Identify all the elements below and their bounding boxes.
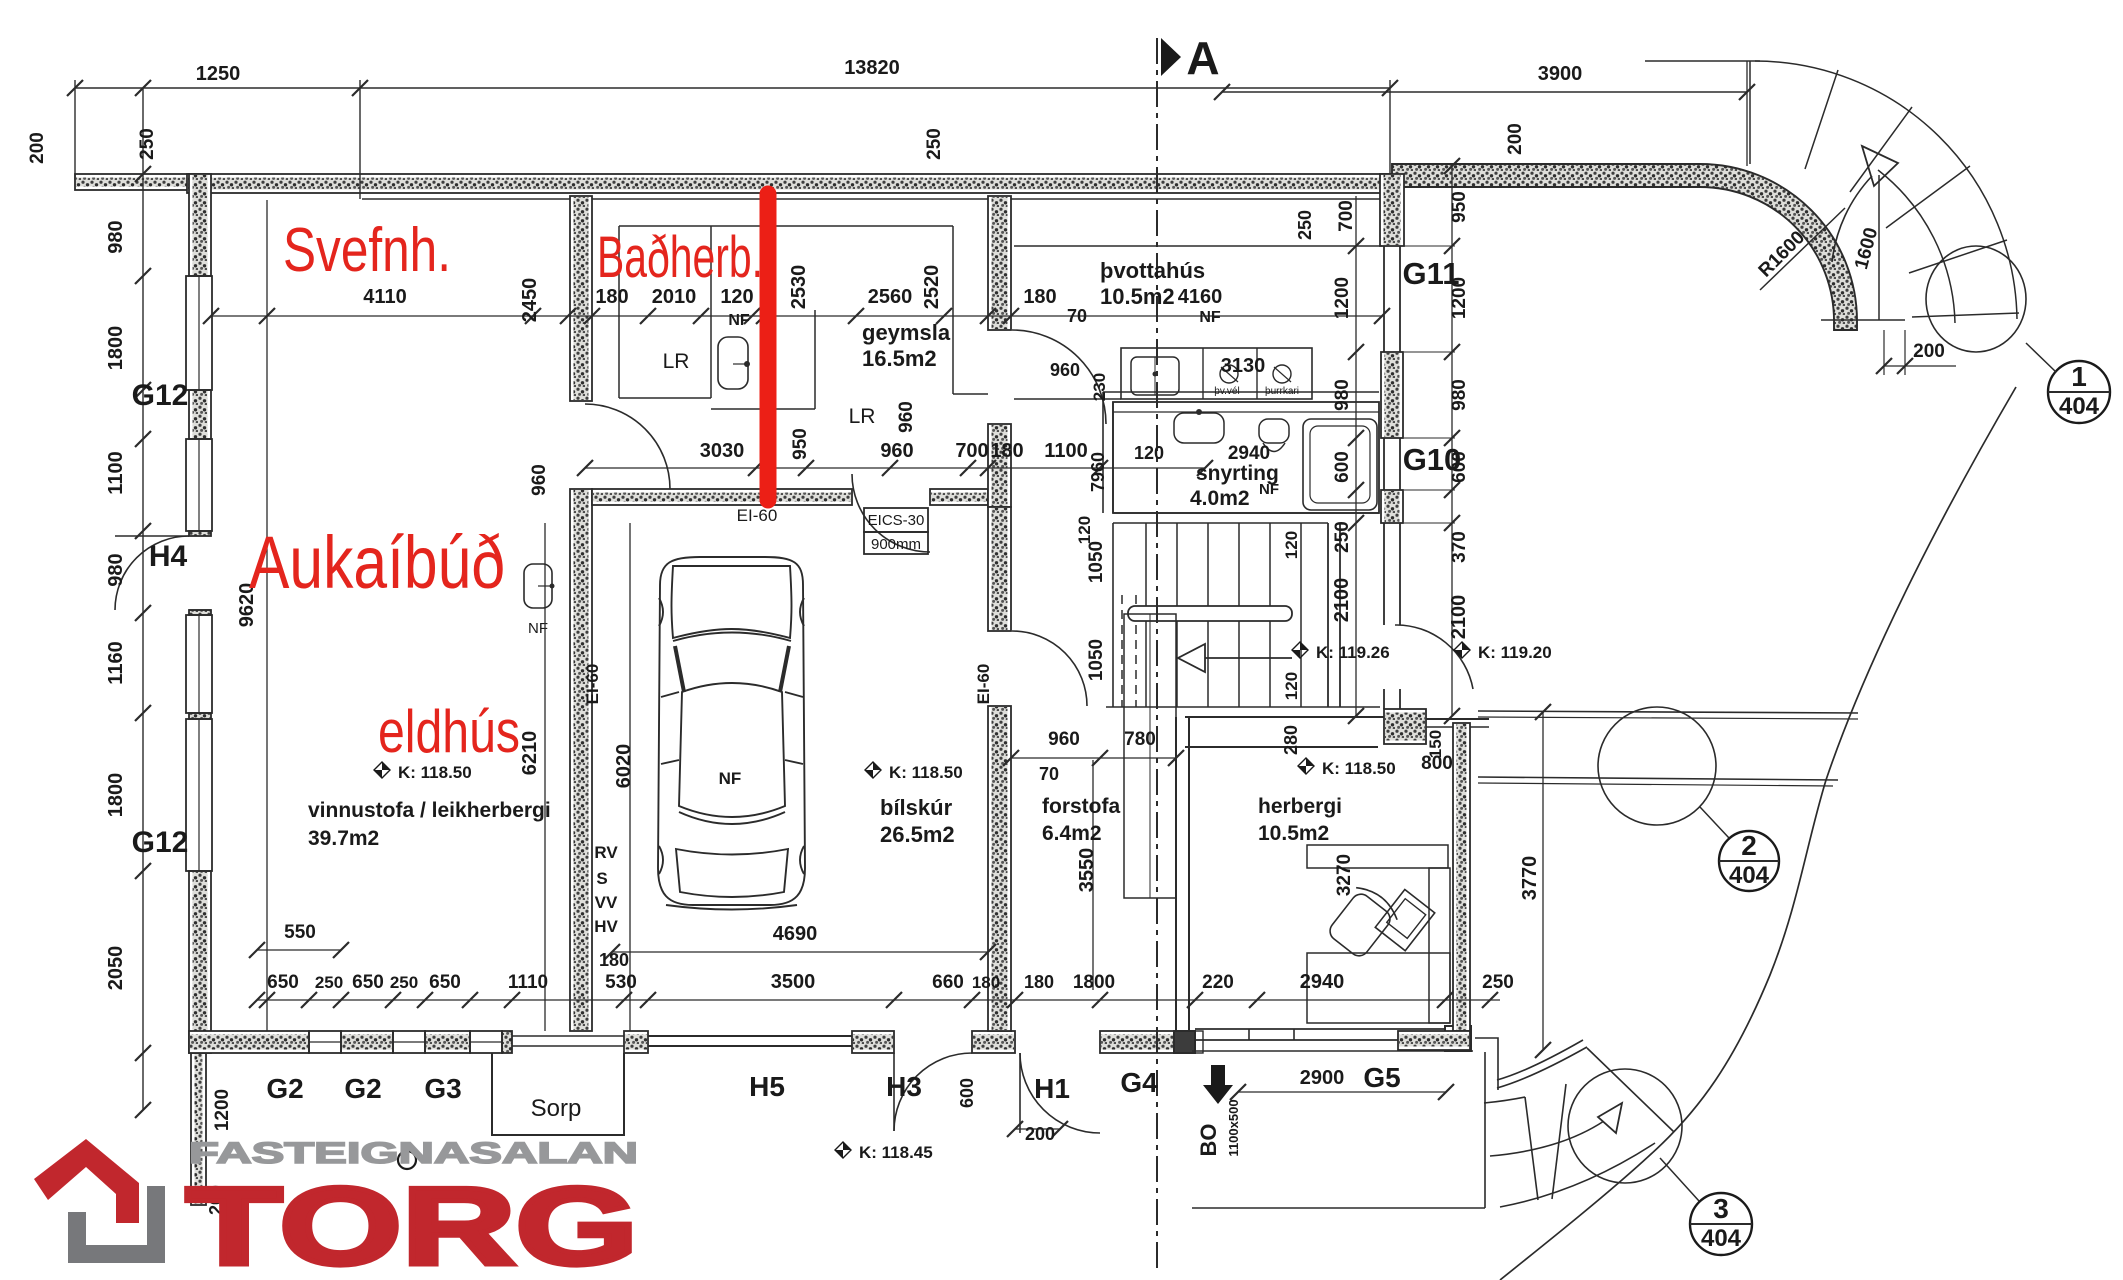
svg-text:13820: 13820 bbox=[844, 57, 900, 79]
svg-text:650: 650 bbox=[429, 972, 461, 993]
svg-text:980: 980 bbox=[105, 553, 127, 586]
svg-text:120: 120 bbox=[1282, 531, 1301, 559]
svg-text:K: 119.20: K: 119.20 bbox=[1478, 643, 1552, 662]
svg-text:250: 250 bbox=[1295, 210, 1315, 240]
svg-text:G12: G12 bbox=[132, 379, 189, 412]
svg-text:BO: BO bbox=[1196, 1124, 1221, 1157]
svg-text:404: 404 bbox=[1729, 862, 1770, 889]
svg-text:10.5m2: 10.5m2 bbox=[1100, 284, 1175, 309]
svg-text:S: S bbox=[596, 869, 607, 888]
svg-text:G10: G10 bbox=[1403, 442, 1462, 477]
svg-text:16.5m2: 16.5m2 bbox=[862, 346, 937, 371]
svg-text:2940: 2940 bbox=[1228, 443, 1270, 464]
svg-text:960: 960 bbox=[529, 464, 550, 496]
svg-text:1800: 1800 bbox=[105, 773, 127, 818]
svg-text:7960: 7960 bbox=[1088, 452, 1108, 492]
svg-text:700: 700 bbox=[1336, 200, 1357, 232]
svg-text:6210: 6210 bbox=[519, 731, 541, 776]
svg-text:660: 660 bbox=[932, 972, 964, 993]
svg-text:1200: 1200 bbox=[212, 1089, 233, 1131]
svg-text:200: 200 bbox=[1505, 123, 1526, 155]
svg-text:NF: NF bbox=[719, 769, 742, 788]
svg-text:404: 404 bbox=[2059, 393, 2100, 420]
svg-text:G3: G3 bbox=[424, 1073, 461, 1104]
svg-text:4110: 4110 bbox=[363, 286, 406, 308]
svg-text:NF: NF bbox=[1199, 309, 1221, 326]
svg-text:2450: 2450 bbox=[519, 278, 541, 323]
svg-text:K: 118.50: K: 118.50 bbox=[398, 763, 472, 782]
svg-text:RV: RV bbox=[594, 843, 618, 862]
svg-text:6020: 6020 bbox=[613, 744, 635, 789]
svg-text:180: 180 bbox=[990, 440, 1023, 462]
svg-text:960: 960 bbox=[880, 440, 913, 462]
svg-text:þv.vél: þv.vél bbox=[1214, 386, 1239, 397]
svg-text:HV: HV bbox=[594, 917, 618, 936]
svg-text:LR: LR bbox=[663, 350, 690, 373]
svg-text:950: 950 bbox=[790, 428, 811, 460]
svg-text:K: 118.50: K: 118.50 bbox=[889, 763, 963, 782]
svg-text:980: 980 bbox=[105, 220, 127, 253]
svg-text:Aukaíbúð: Aukaíbúð bbox=[249, 521, 505, 604]
svg-text:EICS-30: EICS-30 bbox=[868, 512, 925, 529]
svg-text:150: 150 bbox=[1426, 730, 1445, 758]
svg-text:G12: G12 bbox=[132, 826, 189, 859]
svg-text:70: 70 bbox=[1067, 306, 1087, 326]
svg-text:1250: 1250 bbox=[196, 63, 241, 85]
svg-text:1050: 1050 bbox=[1086, 639, 1107, 681]
svg-text:3550: 3550 bbox=[1076, 848, 1098, 893]
svg-text:þurrkari: þurrkari bbox=[1265, 386, 1299, 397]
svg-text:280: 280 bbox=[1281, 725, 1301, 755]
svg-text:forstofa: forstofa bbox=[1042, 795, 1120, 818]
svg-text:650: 650 bbox=[352, 972, 384, 993]
svg-text:þvottahús: þvottahús bbox=[1100, 258, 1205, 283]
svg-text:3270: 3270 bbox=[1334, 854, 1355, 896]
svg-text:2940: 2940 bbox=[1300, 971, 1345, 993]
svg-text:1160: 1160 bbox=[105, 641, 127, 684]
svg-text:250: 250 bbox=[1332, 521, 1353, 553]
svg-text:180: 180 bbox=[599, 950, 629, 970]
svg-text:6.4m2: 6.4m2 bbox=[1042, 822, 1102, 845]
svg-text:1800: 1800 bbox=[105, 326, 127, 371]
svg-text:herbergi: herbergi bbox=[1258, 795, 1342, 818]
svg-text:250: 250 bbox=[137, 128, 158, 160]
svg-text:120: 120 bbox=[1075, 516, 1094, 544]
svg-text:1050: 1050 bbox=[1086, 541, 1107, 583]
svg-text:2530: 2530 bbox=[788, 265, 810, 310]
svg-text:G2: G2 bbox=[266, 1073, 303, 1104]
svg-text:1100: 1100 bbox=[105, 451, 127, 494]
svg-text:2900: 2900 bbox=[1300, 1067, 1345, 1089]
svg-text:26.5m2: 26.5m2 bbox=[880, 822, 955, 847]
svg-text:230: 230 bbox=[1090, 373, 1109, 401]
svg-text:3500: 3500 bbox=[771, 971, 816, 993]
svg-text:2100: 2100 bbox=[1448, 595, 1470, 640]
svg-text:39.7m2: 39.7m2 bbox=[308, 827, 379, 850]
svg-text:250: 250 bbox=[390, 973, 418, 992]
svg-text:3900: 3900 bbox=[1538, 63, 1583, 85]
svg-text:550: 550 bbox=[284, 922, 316, 943]
svg-text:404: 404 bbox=[1701, 1225, 1742, 1252]
svg-text:180: 180 bbox=[1023, 286, 1056, 308]
svg-text:370: 370 bbox=[1449, 531, 1470, 563]
svg-text:Baðherb.: Baðherb. bbox=[597, 225, 763, 290]
svg-text:TORG: TORG bbox=[186, 1165, 638, 1280]
svg-text:2050: 2050 bbox=[105, 946, 127, 991]
svg-text:eldhús: eldhús bbox=[378, 698, 520, 765]
svg-text:960: 960 bbox=[1050, 360, 1080, 380]
svg-text:K: 118.50: K: 118.50 bbox=[1322, 759, 1396, 778]
svg-text:H3: H3 bbox=[886, 1071, 922, 1102]
svg-text:2100: 2100 bbox=[1331, 578, 1353, 623]
svg-text:Sorp: Sorp bbox=[531, 1095, 582, 1122]
svg-text:bílskúr: bílskúr bbox=[880, 795, 953, 820]
svg-text:3130: 3130 bbox=[1221, 355, 1266, 377]
svg-text:1100: 1100 bbox=[1044, 440, 1087, 462]
svg-text:1: 1 bbox=[2071, 361, 2087, 392]
svg-text:960: 960 bbox=[896, 401, 917, 433]
svg-text:VV: VV bbox=[595, 893, 618, 912]
svg-text:LR: LR bbox=[849, 405, 876, 428]
svg-text:120: 120 bbox=[1134, 443, 1164, 463]
svg-text:70: 70 bbox=[1039, 764, 1059, 784]
svg-text:600: 600 bbox=[1332, 451, 1353, 483]
svg-text:780: 780 bbox=[1124, 729, 1156, 750]
svg-text:650: 650 bbox=[267, 972, 299, 993]
svg-text:K: 118.45: K: 118.45 bbox=[859, 1143, 933, 1162]
svg-text:snyrting: snyrting bbox=[1196, 462, 1279, 485]
svg-text:K: 119.26: K: 119.26 bbox=[1316, 643, 1390, 662]
svg-text:H4: H4 bbox=[149, 540, 188, 573]
svg-text:Svefnh.: Svefnh. bbox=[283, 216, 451, 285]
svg-text:180: 180 bbox=[1024, 972, 1054, 992]
svg-text:2560: 2560 bbox=[868, 286, 913, 308]
svg-text:G5: G5 bbox=[1363, 1062, 1400, 1093]
svg-text:950: 950 bbox=[1449, 191, 1470, 223]
svg-text:600: 600 bbox=[957, 1078, 977, 1108]
svg-text:A: A bbox=[1186, 32, 1219, 84]
svg-text:1100x500: 1100x500 bbox=[1226, 1099, 1241, 1156]
svg-text:H5: H5 bbox=[749, 1071, 785, 1102]
svg-text:960: 960 bbox=[1048, 729, 1080, 750]
svg-text:EI-60: EI-60 bbox=[974, 664, 993, 705]
svg-text:220: 220 bbox=[1202, 972, 1234, 993]
svg-text:250: 250 bbox=[1482, 972, 1514, 993]
svg-text:2: 2 bbox=[1741, 830, 1757, 861]
svg-text:vinnustofa / leikherbergi: vinnustofa / leikherbergi bbox=[308, 799, 551, 822]
svg-text:H1: H1 bbox=[1034, 1073, 1070, 1104]
svg-text:3: 3 bbox=[1713, 1193, 1729, 1224]
svg-text:980: 980 bbox=[1332, 379, 1353, 411]
svg-text:3030: 3030 bbox=[700, 440, 745, 462]
svg-text:geymsla: geymsla bbox=[862, 320, 951, 345]
svg-text:530: 530 bbox=[605, 972, 637, 993]
svg-text:250: 250 bbox=[924, 128, 945, 160]
svg-text:3770: 3770 bbox=[1519, 856, 1541, 901]
svg-text:G11: G11 bbox=[1403, 256, 1460, 291]
svg-text:4160: 4160 bbox=[1178, 286, 1223, 308]
svg-text:4690: 4690 bbox=[773, 923, 818, 945]
svg-text:1110: 1110 bbox=[508, 972, 548, 993]
svg-text:980: 980 bbox=[1449, 379, 1470, 411]
svg-text:120: 120 bbox=[1282, 672, 1301, 700]
svg-text:2520: 2520 bbox=[921, 265, 943, 310]
svg-text:180: 180 bbox=[972, 973, 1000, 992]
svg-text:1800: 1800 bbox=[1073, 972, 1115, 993]
svg-text:G2: G2 bbox=[344, 1073, 381, 1104]
svg-text:200: 200 bbox=[1913, 341, 1945, 362]
svg-text:200: 200 bbox=[1025, 1124, 1055, 1144]
svg-text:EI-60: EI-60 bbox=[737, 506, 778, 525]
svg-text:NF: NF bbox=[728, 312, 750, 329]
svg-text:250: 250 bbox=[315, 973, 343, 992]
svg-text:900mm: 900mm bbox=[871, 536, 921, 553]
svg-text:EI-60: EI-60 bbox=[583, 664, 602, 705]
svg-text:1200: 1200 bbox=[1332, 277, 1353, 319]
svg-text:700: 700 bbox=[955, 440, 988, 462]
svg-text:G4: G4 bbox=[1120, 1067, 1158, 1098]
svg-text:4.0m2: 4.0m2 bbox=[1190, 487, 1250, 510]
svg-text:200: 200 bbox=[27, 132, 48, 164]
svg-text:10.5m2: 10.5m2 bbox=[1258, 822, 1329, 845]
